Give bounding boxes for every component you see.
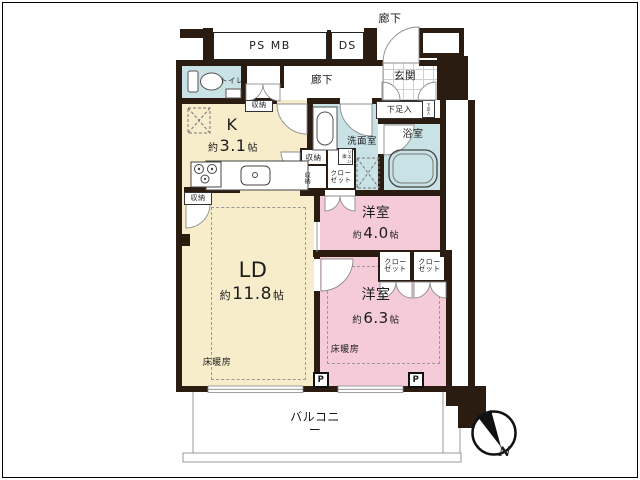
shoe-cabinet-door-arc: [418, 82, 436, 100]
closet-center-door-arc: [340, 196, 355, 211]
closet-b-door-arc: [430, 282, 446, 298]
hall-storage-door-arc: [263, 84, 280, 101]
washer-space-icon: [357, 158, 379, 188]
refrigerator-space-icon: [188, 108, 210, 133]
pipe-marker-b: P: [408, 372, 424, 388]
kitchen-counter-icon: [191, 161, 308, 190]
center-closet-label: クローゼット: [330, 166, 352, 188]
ld-name-label: LD: [236, 259, 270, 282]
balcony-windows: [208, 386, 403, 393]
bedroom1-name-label: 洋室: [360, 206, 392, 221]
pipe-marker-a: P: [313, 372, 329, 388]
ld-storage-door-arc: [186, 204, 210, 228]
closet-a-door-arc: [396, 282, 412, 298]
kitchen-storage-label: 収納: [184, 192, 212, 205]
bedroom2-size-label: 約6.3帖: [350, 311, 402, 328]
washroom-door-arc: [340, 104, 372, 136]
north-label: N: [497, 444, 513, 462]
ld-size-label: 約11.8帖: [221, 286, 283, 304]
bathroom-label: 浴室: [400, 130, 426, 141]
closet-b-door-arc: [414, 282, 430, 298]
ld-floor-heating-label: 床暖房: [201, 358, 233, 369]
corridor-label: 廊下: [308, 75, 336, 87]
corridor-top-label: 廊下: [372, 12, 408, 26]
washbasin-icon: [313, 107, 337, 150]
closet-a-label: クローゼット: [384, 254, 407, 278]
ps-mb-label: PS MB: [213, 32, 327, 60]
bedroom2-door-arc: [321, 259, 353, 291]
balcony-label: バルコニー: [286, 417, 344, 431]
shoe-cabinet-small-label: 下足入: [423, 101, 434, 117]
toilet-label: トイレ: [219, 76, 245, 86]
center-storage-side-label: 収納: [301, 167, 311, 188]
hall-storage-door-arc: [246, 84, 263, 101]
kitchen-door-arc: [277, 104, 307, 134]
fixtures-overlay: [0, 0, 640, 480]
linen-label: リネン庫: [339, 148, 352, 165]
closet-b-label: クローゼット: [418, 254, 441, 278]
bedroom1-size-label: 約4.0帖: [351, 226, 401, 242]
closet-center-door-arc: [325, 196, 340, 211]
washroom-label: 洗面室: [346, 136, 378, 147]
kitchen-size-label: 約3.1帖: [204, 138, 262, 154]
bedroom2-floor-heating-label: 床暖房: [329, 345, 361, 356]
ds-label: DS: [331, 32, 364, 60]
kitchen-name-label: K: [222, 116, 242, 134]
center-storage-label: 収納: [302, 152, 325, 163]
shoe-cabinet-door-arc: [382, 82, 400, 100]
floor-plan: PS MB DS 廊下 トイレ 収納 廊下 玄関 下足入 下足入 K 約3.1帖…: [0, 0, 640, 480]
genkan-label: 玄関: [392, 71, 418, 83]
bedroom2-name-label: 洋室: [359, 287, 393, 303]
shoe-cabinet-label: 下足入: [376, 101, 423, 119]
bathtub-icon: [389, 150, 437, 187]
entrance-door-arc: [383, 27, 419, 63]
hall-storage-label: 収納: [245, 100, 273, 112]
